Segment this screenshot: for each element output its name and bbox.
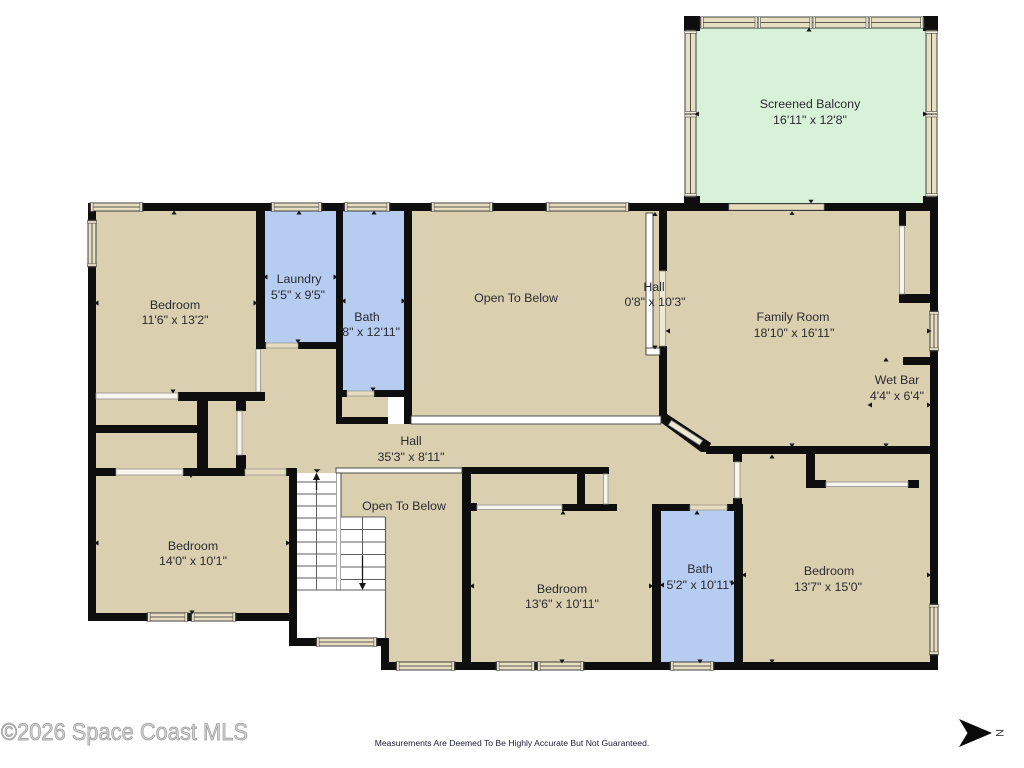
svg-text:4'4" x 6'4": 4'4" x 6'4": [870, 389, 924, 403]
svg-text:13'6" x 10'11": 13'6" x 10'11": [525, 597, 599, 611]
svg-text:5'2" x 10'11": 5'2" x 10'11": [666, 578, 733, 592]
svg-text:Open To Below: Open To Below: [474, 291, 558, 305]
svg-text:11'6" x 13'2": 11'6" x 13'2": [141, 313, 208, 327]
svg-text:Bedroom: Bedroom: [168, 539, 218, 553]
svg-text:Open To Below: Open To Below: [362, 499, 446, 513]
svg-text:Hall: Hall: [400, 434, 421, 448]
svg-text:Screened Balcony: Screened Balcony: [760, 97, 861, 111]
svg-text:'8" x 12'11": '8" x 12'11": [340, 325, 400, 339]
svg-text:35'3" x 8'11": 35'3" x 8'11": [377, 450, 444, 464]
svg-text:Bedroom: Bedroom: [150, 298, 200, 312]
svg-text:Wet Bar: Wet Bar: [875, 373, 920, 387]
svg-text:13'7" x 15'0": 13'7" x 15'0": [794, 580, 862, 594]
svg-text:Laundry: Laundry: [277, 272, 323, 286]
svg-text:Bath: Bath: [687, 562, 713, 576]
svg-text:Measurements Are Deemed To Be: Measurements Are Deemed To Be Highly Acc…: [375, 738, 650, 748]
svg-text:Bedroom: Bedroom: [804, 564, 854, 578]
svg-text:Family Room: Family Room: [757, 310, 830, 324]
svg-text:14'0" x 10'1": 14'0" x 10'1": [159, 554, 227, 568]
svg-text:©2026 Space Coast MLS: ©2026 Space Coast MLS: [1, 719, 248, 746]
svg-text:5'5" x 9'5": 5'5" x 9'5": [271, 288, 325, 302]
svg-text:18'10" x 16'11": 18'10" x 16'11": [754, 326, 835, 340]
svg-text:16'11" x 12'8": 16'11" x 12'8": [773, 113, 847, 127]
svg-text:Hall: Hall: [643, 280, 664, 294]
svg-text:0'8" x 10'3": 0'8" x 10'3": [624, 295, 685, 309]
svg-text:Bath: Bath: [354, 310, 380, 324]
svg-text:N: N: [993, 729, 1005, 737]
svg-text:Bedroom: Bedroom: [537, 582, 587, 596]
